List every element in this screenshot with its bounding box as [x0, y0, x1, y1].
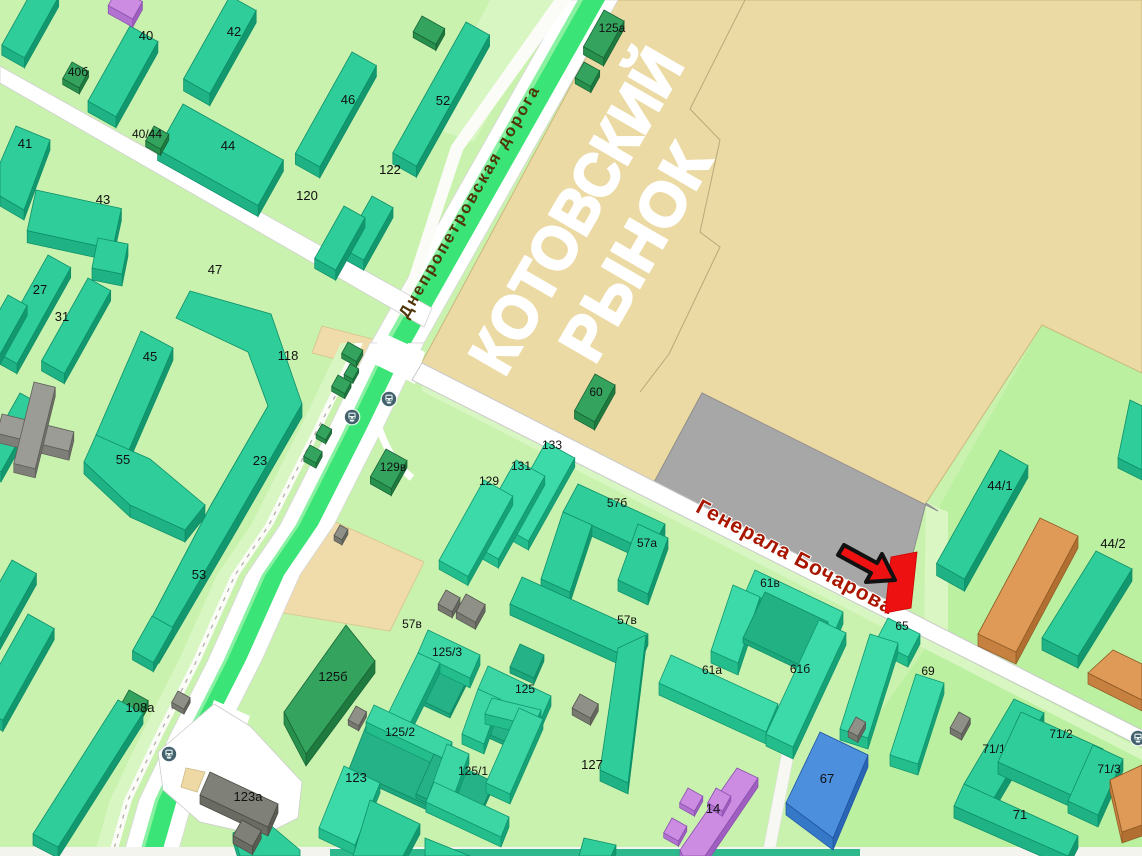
svg-text:46: 46	[341, 92, 355, 107]
svg-text:31: 31	[55, 309, 69, 324]
svg-text:108а: 108а	[126, 700, 156, 715]
svg-text:71: 71	[1013, 807, 1027, 822]
svg-text:125: 125	[515, 682, 535, 696]
svg-text:133: 133	[542, 438, 562, 452]
svg-text:131: 131	[511, 459, 531, 473]
svg-text:40б: 40б	[68, 65, 88, 79]
svg-text:125/3: 125/3	[432, 645, 462, 659]
svg-text:61в: 61в	[760, 576, 780, 590]
svg-text:123а: 123а	[234, 789, 264, 804]
svg-text:71/3: 71/3	[1097, 762, 1121, 776]
svg-text:52: 52	[436, 93, 450, 108]
svg-text:129: 129	[479, 474, 499, 488]
svg-text:122: 122	[379, 162, 401, 177]
svg-text:120: 120	[296, 188, 318, 203]
svg-text:57в: 57в	[402, 617, 422, 631]
svg-text:44: 44	[221, 138, 235, 153]
svg-text:57а: 57а	[637, 536, 657, 550]
svg-text:47: 47	[208, 262, 222, 277]
svg-text:40: 40	[139, 28, 153, 43]
svg-text:125/2: 125/2	[385, 725, 415, 739]
svg-text:40/44: 40/44	[132, 127, 162, 141]
svg-text:125а: 125а	[599, 21, 626, 35]
svg-text:61б: 61б	[790, 662, 810, 676]
svg-text:71/2: 71/2	[1049, 727, 1073, 741]
svg-text:44/2: 44/2	[1100, 536, 1125, 551]
svg-text:27: 27	[33, 282, 47, 297]
svg-text:129в: 129в	[380, 460, 406, 474]
svg-text:14: 14	[706, 801, 720, 816]
svg-text:127: 127	[581, 757, 603, 772]
svg-text:61а: 61а	[702, 663, 722, 677]
svg-text:123: 123	[345, 770, 367, 785]
svg-text:125б: 125б	[318, 669, 347, 684]
svg-text:45: 45	[143, 349, 157, 364]
svg-text:57б: 57б	[607, 496, 627, 510]
svg-text:57в: 57в	[617, 613, 637, 627]
svg-text:125/1: 125/1	[458, 764, 488, 778]
svg-text:60: 60	[589, 385, 603, 399]
svg-text:118: 118	[278, 348, 299, 363]
svg-text:65: 65	[895, 619, 909, 633]
svg-text:42: 42	[227, 24, 241, 39]
svg-text:43: 43	[96, 192, 110, 207]
svg-text:44/1: 44/1	[987, 478, 1012, 493]
svg-text:41: 41	[18, 136, 32, 151]
svg-text:23: 23	[253, 453, 267, 468]
svg-text:67: 67	[820, 771, 834, 786]
svg-text:69: 69	[921, 664, 935, 678]
svg-text:55: 55	[116, 452, 130, 467]
svg-text:53: 53	[192, 567, 206, 582]
